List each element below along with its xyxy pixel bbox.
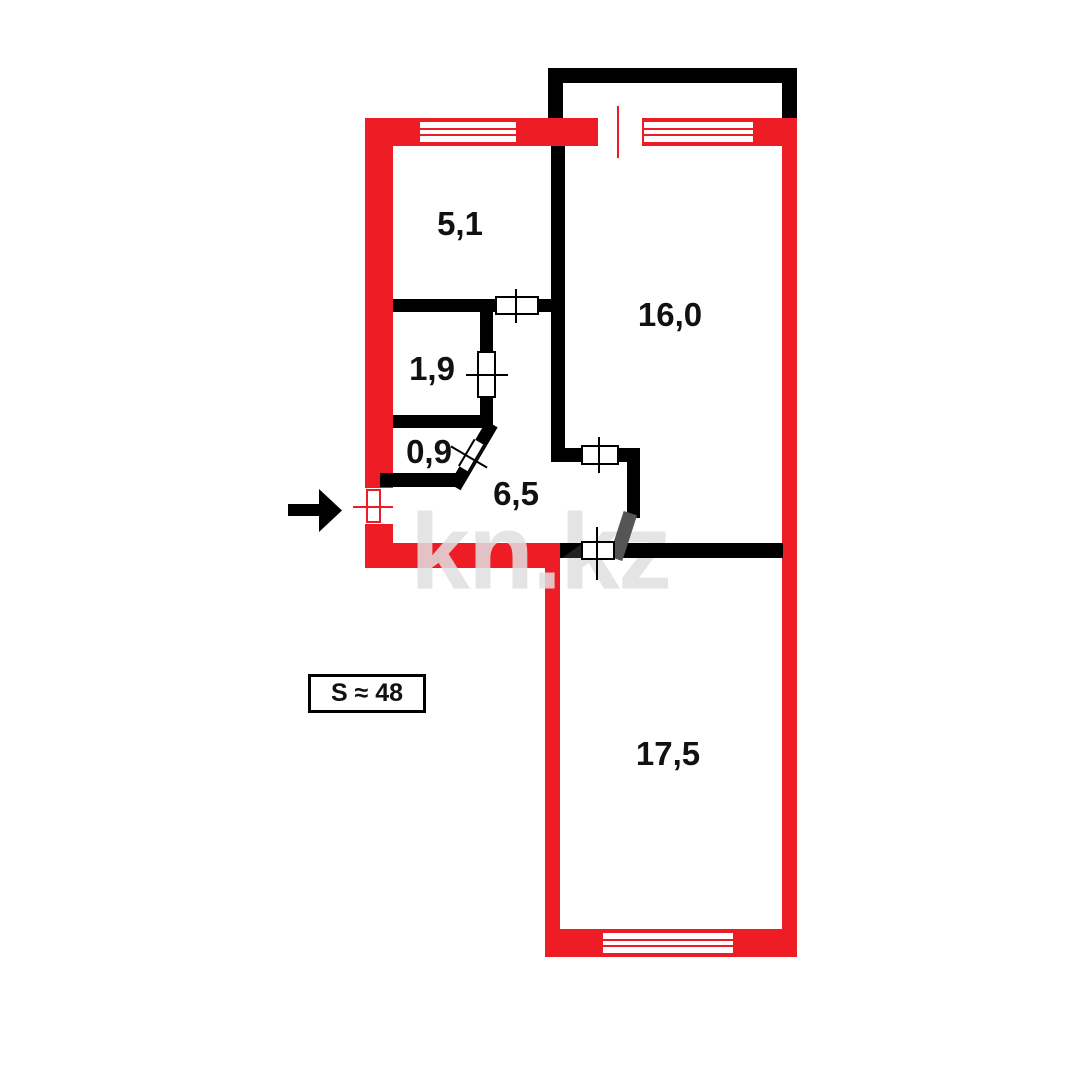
room-area-label-0-9: 0,9 xyxy=(406,433,452,471)
door-tick-room-5-1 xyxy=(515,289,517,323)
wall-room-1-9-bottom xyxy=(393,415,493,428)
window-room-16-0 xyxy=(642,120,755,144)
door-tick-balcony xyxy=(617,106,619,158)
total-area-label: S ≈ 48 xyxy=(331,679,403,708)
wall-exterior-right xyxy=(782,118,797,957)
wall-room-0-9-bottom xyxy=(380,473,460,487)
balcony-wall-left xyxy=(548,68,563,118)
room-area-label-6-5: 6,5 xyxy=(493,475,539,513)
door-tick-room-1-9 xyxy=(466,374,508,376)
room-area-label-17-5: 17,5 xyxy=(636,735,700,773)
door-room-16-0 xyxy=(581,445,619,465)
door-room-17-5 xyxy=(581,541,615,560)
room-area-label-1-9: 1,9 xyxy=(409,350,455,388)
total-area-badge: S ≈ 48 xyxy=(308,674,426,713)
door-room-5-1 xyxy=(495,296,539,315)
door-tick-room-17-5 xyxy=(596,527,598,580)
door-tick-entrance xyxy=(353,506,393,508)
door-tick-room-16-0 xyxy=(598,437,600,473)
window-room-17-5 xyxy=(601,931,735,955)
window-room-5-1 xyxy=(418,120,518,144)
entrance-arrow-icon xyxy=(288,504,321,516)
room-area-label-16-0: 16,0 xyxy=(638,296,702,334)
floor-plan: kn.kz 5,1 16,0 1,9 0,9 6,5 17,5 xyxy=(0,0,1080,1080)
entrance-arrow-head-icon xyxy=(319,489,342,532)
wall-niche-vertical xyxy=(627,448,640,518)
balcony-wall-top xyxy=(548,68,797,83)
balcony-wall-right xyxy=(782,68,797,118)
door-balcony-opening xyxy=(598,118,642,146)
wall-between-5-1-and-16-0 xyxy=(551,146,565,448)
room-area-label-5-1: 5,1 xyxy=(437,205,483,243)
